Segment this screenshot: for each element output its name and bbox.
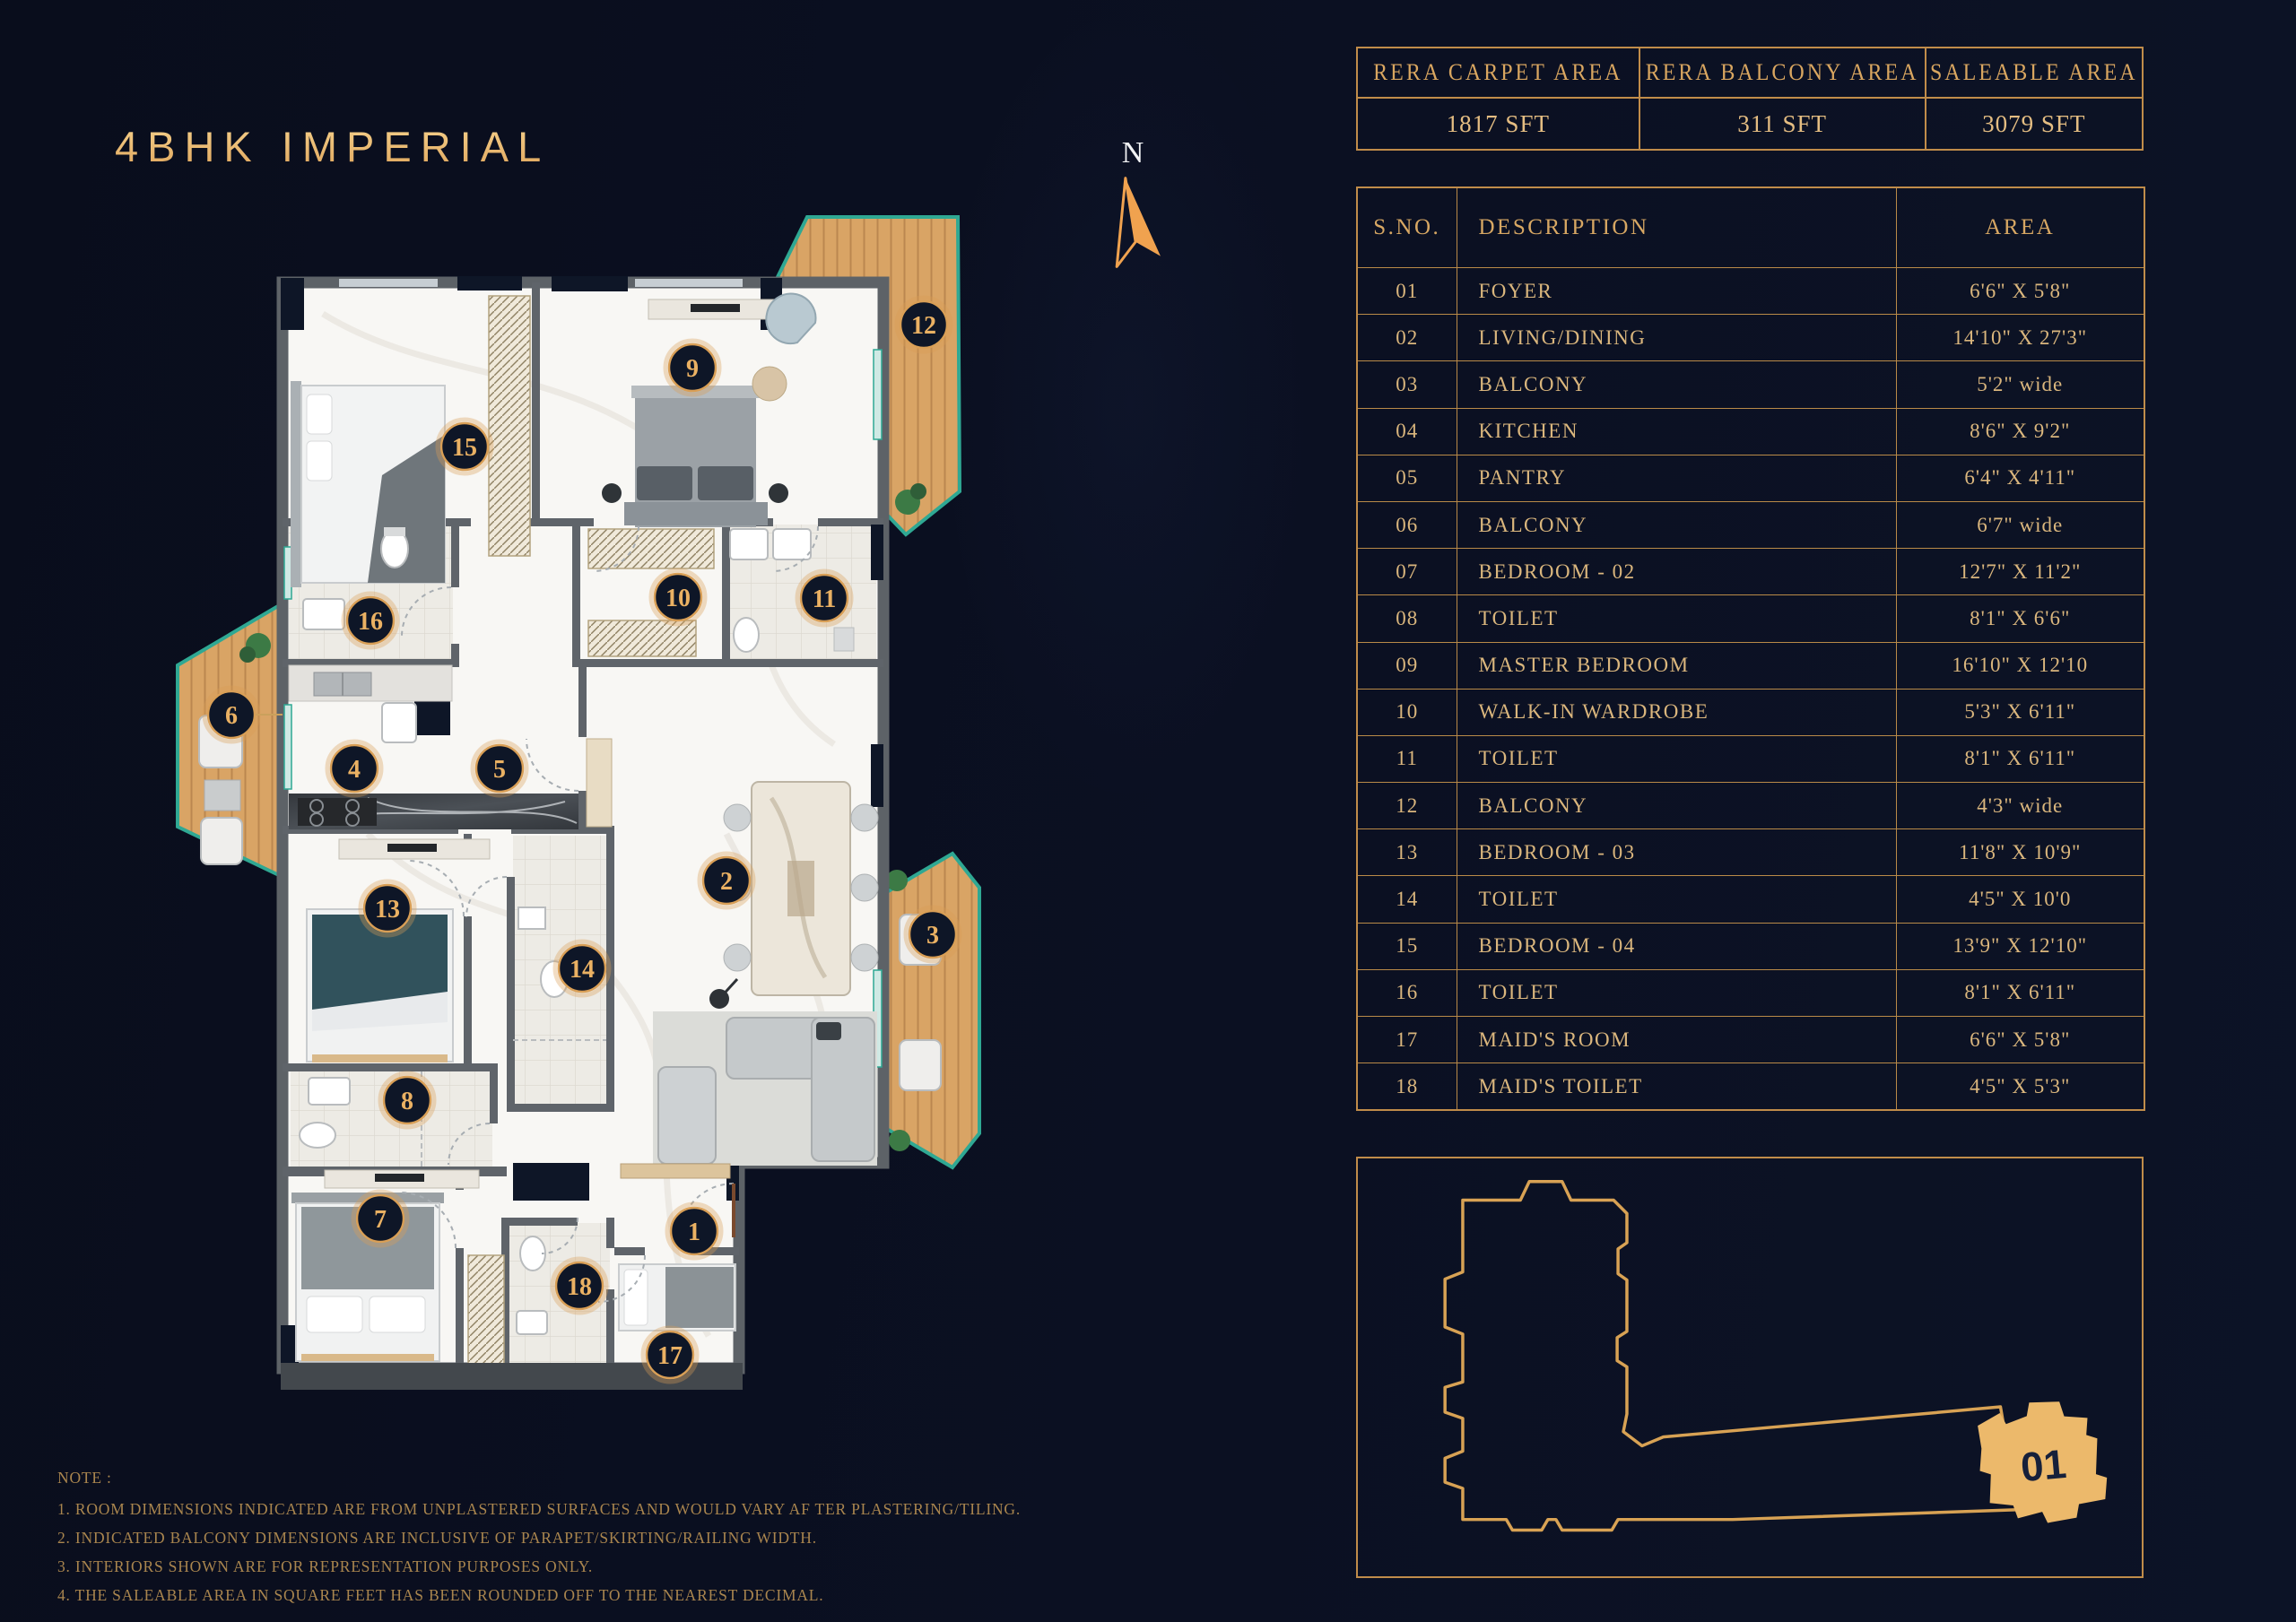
room-badge-number: 18 [567, 1273, 592, 1301]
corridor-wardrobe [468, 1255, 504, 1366]
col-header-description: DESCRIPTION [1457, 187, 1896, 268]
col-header-sno: S.NO. [1357, 187, 1457, 268]
row-area: 8'1" X 6'11" [1896, 735, 2144, 782]
row-sno: 10 [1357, 689, 1457, 735]
row-description: TOILET [1457, 735, 1896, 782]
area-table-body: 01FOYER6'6" X 5'8"02LIVING/DINING14'10" … [1357, 268, 2144, 1111]
row-sno: 03 [1357, 361, 1457, 408]
maid-room-furniture [619, 1264, 735, 1331]
room-badge-18: 18 [552, 1259, 606, 1313]
row-sno: 05 [1357, 455, 1457, 501]
row-sno: 16 [1357, 969, 1457, 1016]
room-badge-number: 12 [911, 312, 936, 340]
row-description: BEDROOM - 02 [1457, 549, 1896, 595]
row-sno: 15 [1357, 923, 1457, 969]
row-sno: 08 [1357, 595, 1457, 642]
area-table-row: 18MAID'S TOILET4'5" X 5'3" [1357, 1063, 2144, 1111]
room-badge-11: 11 [797, 571, 851, 625]
foyer-shoe-cabinet [621, 1164, 730, 1178]
key-plan-building-outline [1445, 1182, 2018, 1531]
room-badge-number: 9 [686, 355, 699, 383]
area-table-row: 06BALCONY6'7" wide [1357, 501, 2144, 548]
room-badge-number: 5 [493, 756, 506, 784]
key-plan: 01 [1356, 1157, 2144, 1578]
row-sno: 12 [1357, 783, 1457, 829]
row-area: 6'7" wide [1896, 501, 2144, 548]
room-badge-number: 1 [688, 1219, 700, 1246]
room-badge-16: 16 [344, 594, 397, 647]
row-sno: 01 [1357, 268, 1457, 315]
row-description: TOILET [1457, 876, 1896, 923]
row-area: 8'1" X 6'6" [1896, 595, 2144, 642]
room-badge-8: 8 [380, 1073, 434, 1127]
room-badge-9: 9 [665, 341, 719, 395]
note-item: 2. INDICATED BALCONY DIMENSIONS ARE INCL… [57, 1529, 1021, 1548]
room-badge-1: 1 [667, 1204, 721, 1258]
room-badge-number: 8 [401, 1088, 413, 1115]
room-badge-number: 11 [813, 585, 836, 613]
row-description: BALCONY [1457, 361, 1896, 408]
floor-plan: 123456789101112131415161718 [99, 206, 1121, 1444]
room-badge-4: 4 [327, 742, 381, 795]
row-area: 6'6" X 5'8" [1896, 268, 2144, 315]
area-table-row: 09MASTER BEDROOM16'10" X 12'10 [1357, 642, 2144, 689]
page-title: 4BHK IMPERIAL [115, 122, 550, 171]
notes: NOTE : 1. ROOM DIMENSIONS INDICATED ARE … [57, 1469, 1021, 1605]
room-badge-number: 6 [225, 702, 238, 730]
area-table: S.NO. DESCRIPTION AREA 01FOYER6'6" X 5'8… [1356, 186, 2144, 1111]
row-description: KITCHEN [1457, 408, 1896, 455]
key-plan-unit-label: 01 [2019, 1441, 2068, 1490]
row-area: 5'2" wide [1896, 361, 2144, 408]
room-badge-3: 3 [906, 907, 960, 961]
row-description: TOILET [1457, 969, 1896, 1016]
room-badge-number: 13 [375, 896, 400, 924]
notes-heading: NOTE : [57, 1469, 1021, 1488]
room-badge-17: 17 [643, 1328, 697, 1382]
summary-value-saleable: 3079 SFT [1926, 99, 2142, 149]
row-area: 6'4" X 4'11" [1896, 455, 2144, 501]
room-badge-15: 15 [438, 420, 491, 473]
area-table-row: 11TOILET8'1" X 6'11" [1357, 735, 2144, 782]
note-item: 1. ROOM DIMENSIONS INDICATED ARE FROM UN… [57, 1500, 1021, 1519]
row-sno: 09 [1357, 642, 1457, 689]
row-sno: 18 [1357, 1063, 1457, 1111]
row-description: LIVING/DINING [1457, 315, 1896, 361]
area-table-row: 07BEDROOM - 0212'7" X 11'2" [1357, 549, 2144, 595]
room-badge-10: 10 [651, 570, 705, 624]
area-table-row: 05PANTRY6'4" X 4'11" [1357, 455, 2144, 501]
room-badge-12: 12 [897, 298, 951, 351]
row-sno: 06 [1357, 501, 1457, 548]
row-description: BEDROOM - 04 [1457, 923, 1896, 969]
row-area: 4'5" X 10'0 [1896, 876, 2144, 923]
area-table-row: 08TOILET8'1" X 6'6" [1357, 595, 2144, 642]
summary-header-carpet: RERA CARPET AREA [1358, 48, 1640, 99]
row-area: 11'8" X 10'9" [1896, 829, 2144, 876]
area-table-row: 14TOILET4'5" X 10'0 [1357, 876, 2144, 923]
room-badge-number: 17 [657, 1342, 683, 1370]
row-area: 8'6" X 9'2" [1896, 408, 2144, 455]
room-badge-number: 7 [374, 1206, 387, 1234]
room-badge-2: 2 [700, 854, 753, 907]
row-description: BEDROOM - 03 [1457, 829, 1896, 876]
area-table-row: 12BALCONY4'3" wide [1357, 783, 2144, 829]
row-description: MASTER BEDROOM [1457, 642, 1896, 689]
row-area: 6'6" X 5'8" [1896, 1017, 2144, 1063]
row-sno: 17 [1357, 1017, 1457, 1063]
row-description: BALCONY [1457, 501, 1896, 548]
room-badge-number: 10 [665, 585, 691, 612]
room-badge-number: 16 [358, 608, 383, 636]
row-area: 14'10" X 27'3" [1896, 315, 2144, 361]
note-item: 4. THE SALEABLE AREA IN SQUARE FEET HAS … [57, 1586, 1021, 1605]
row-description: MAID'S TOILET [1457, 1063, 1896, 1111]
summary-header-saleable: SALEABLE AREA [1926, 48, 2142, 99]
room-badge-number: 4 [348, 756, 361, 784]
area-table-row: 16TOILET8'1" X 6'11" [1357, 969, 2144, 1016]
room-badge-13: 13 [361, 881, 414, 935]
room-badge-number: 14 [570, 956, 595, 984]
room-badge-number: 3 [926, 922, 939, 950]
row-description: MAID'S ROOM [1457, 1017, 1896, 1063]
area-table-row: 03BALCONY5'2" wide [1357, 361, 2144, 408]
room-badge-14: 14 [555, 941, 609, 995]
row-description: WALK-IN WARDROBE [1457, 689, 1896, 735]
area-table-header-row: S.NO. DESCRIPTION AREA [1357, 187, 2144, 268]
row-description: FOYER [1457, 268, 1896, 315]
balcony-3-deck [885, 854, 979, 1167]
row-area: 4'5" X 5'3" [1896, 1063, 2144, 1111]
row-sno: 11 [1357, 735, 1457, 782]
floorplan-brochure: 4BHK IMPERIAL N RERA CARPET AREA RERA BA… [0, 0, 2296, 1622]
area-table-row: 17MAID'S ROOM6'6" X 5'8" [1357, 1017, 2144, 1063]
room-badge-6: 6 [204, 688, 258, 742]
room-badge-5: 5 [473, 742, 526, 795]
summary-table: RERA CARPET AREA RERA BALCONY AREA SALEA… [1356, 47, 2144, 151]
row-area: 8'1" X 6'11" [1896, 969, 2144, 1016]
key-plan-drawing: 01 [1358, 1158, 2141, 1575]
summary-value-balcony: 311 SFT [1640, 99, 1926, 149]
area-table-row: 02LIVING/DINING14'10" X 27'3" [1357, 315, 2144, 361]
row-area: 16'10" X 12'10 [1896, 642, 2144, 689]
row-sno: 02 [1357, 315, 1457, 361]
note-item: 3. INTERIORS SHOWN ARE FOR REPRESENTATIO… [57, 1557, 1021, 1576]
room-badge-number: 2 [720, 868, 733, 896]
row-sno: 04 [1357, 408, 1457, 455]
row-area: 4'3" wide [1896, 783, 2144, 829]
area-table-row: 04KITCHEN8'6" X 9'2" [1357, 408, 2144, 455]
row-area: 13'9" X 12'10" [1896, 923, 2144, 969]
row-area: 12'7" X 11'2" [1896, 549, 2144, 595]
row-sno: 07 [1357, 549, 1457, 595]
key-plan-unit-01: 01 [1974, 1396, 2110, 1528]
area-table-row: 15BEDROOM - 0413'9" X 12'10" [1357, 923, 2144, 969]
compass-north-label: N [1092, 136, 1173, 170]
row-sno: 13 [1357, 829, 1457, 876]
room-badge-number: 15 [452, 434, 477, 462]
col-header-area: AREA [1896, 187, 2144, 268]
row-description: TOILET [1457, 595, 1896, 642]
summary-header-balcony: RERA BALCONY AREA [1640, 48, 1926, 99]
summary-value-carpet: 1817 SFT [1358, 99, 1640, 149]
row-sno: 14 [1357, 876, 1457, 923]
row-description: PANTRY [1457, 455, 1896, 501]
row-description: BALCONY [1457, 783, 1896, 829]
area-table-row: 01FOYER6'6" X 5'8" [1357, 268, 2144, 315]
area-table-row: 10WALK-IN WARDROBE5'3" X 6'11" [1357, 689, 2144, 735]
area-table-row: 13BEDROOM - 0311'8" X 10'9" [1357, 829, 2144, 876]
room-badge-7: 7 [353, 1192, 407, 1245]
row-area: 5'3" X 6'11" [1896, 689, 2144, 735]
